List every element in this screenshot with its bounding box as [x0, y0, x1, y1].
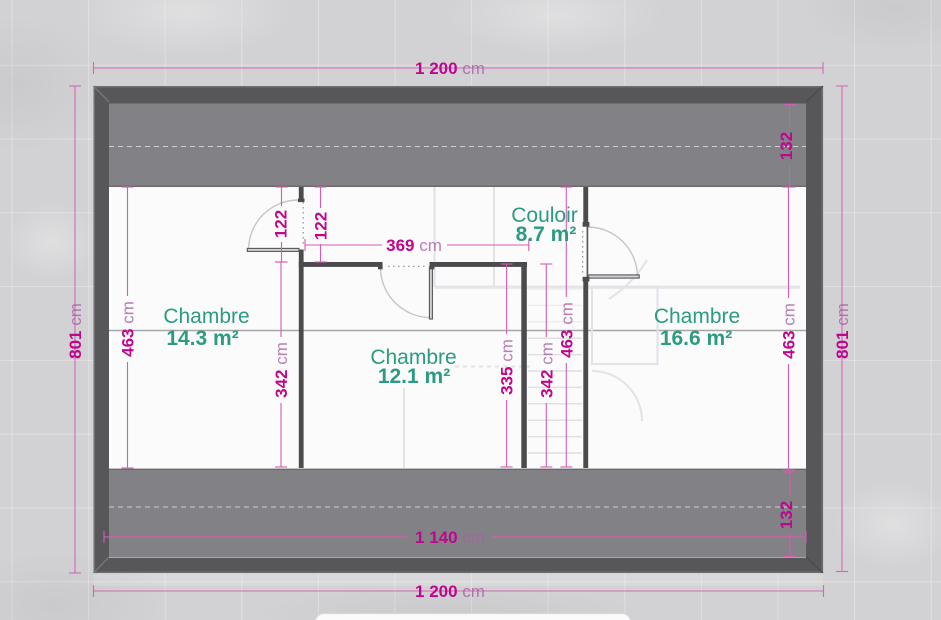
- svg-text:463 cm: 463 cm: [557, 302, 576, 358]
- svg-text:132: 132: [777, 132, 796, 160]
- svg-text:801 cm: 801 cm: [66, 303, 85, 359]
- svg-text:12.1 m²: 12.1 m²: [378, 365, 450, 388]
- svg-text:342 cm: 342 cm: [272, 342, 291, 398]
- svg-text:801 cm: 801 cm: [833, 303, 852, 359]
- svg-text:463 cm: 463 cm: [780, 303, 799, 359]
- svg-text:Chambre: Chambre: [654, 305, 740, 328]
- svg-text:16.6 m²: 16.6 m²: [660, 327, 732, 350]
- svg-text:14.3 m²: 14.3 m²: [166, 327, 238, 350]
- svg-text:1 140 cm: 1 140 cm: [415, 528, 485, 547]
- svg-text:132: 132: [777, 501, 796, 529]
- svg-text:335 cm: 335 cm: [498, 339, 517, 395]
- svg-text:369 cm: 369 cm: [386, 236, 442, 255]
- svg-text:1 200 cm: 1 200 cm: [415, 59, 485, 78]
- svg-text:342 cm: 342 cm: [537, 342, 556, 398]
- svg-text:1 200 cm: 1 200 cm: [415, 582, 485, 601]
- svg-text:122: 122: [312, 212, 331, 240]
- svg-text:Chambre: Chambre: [163, 305, 249, 328]
- svg-text:122: 122: [272, 210, 291, 238]
- svg-text:463 cm: 463 cm: [119, 301, 138, 357]
- svg-text:8.7 m²: 8.7 m²: [516, 223, 577, 246]
